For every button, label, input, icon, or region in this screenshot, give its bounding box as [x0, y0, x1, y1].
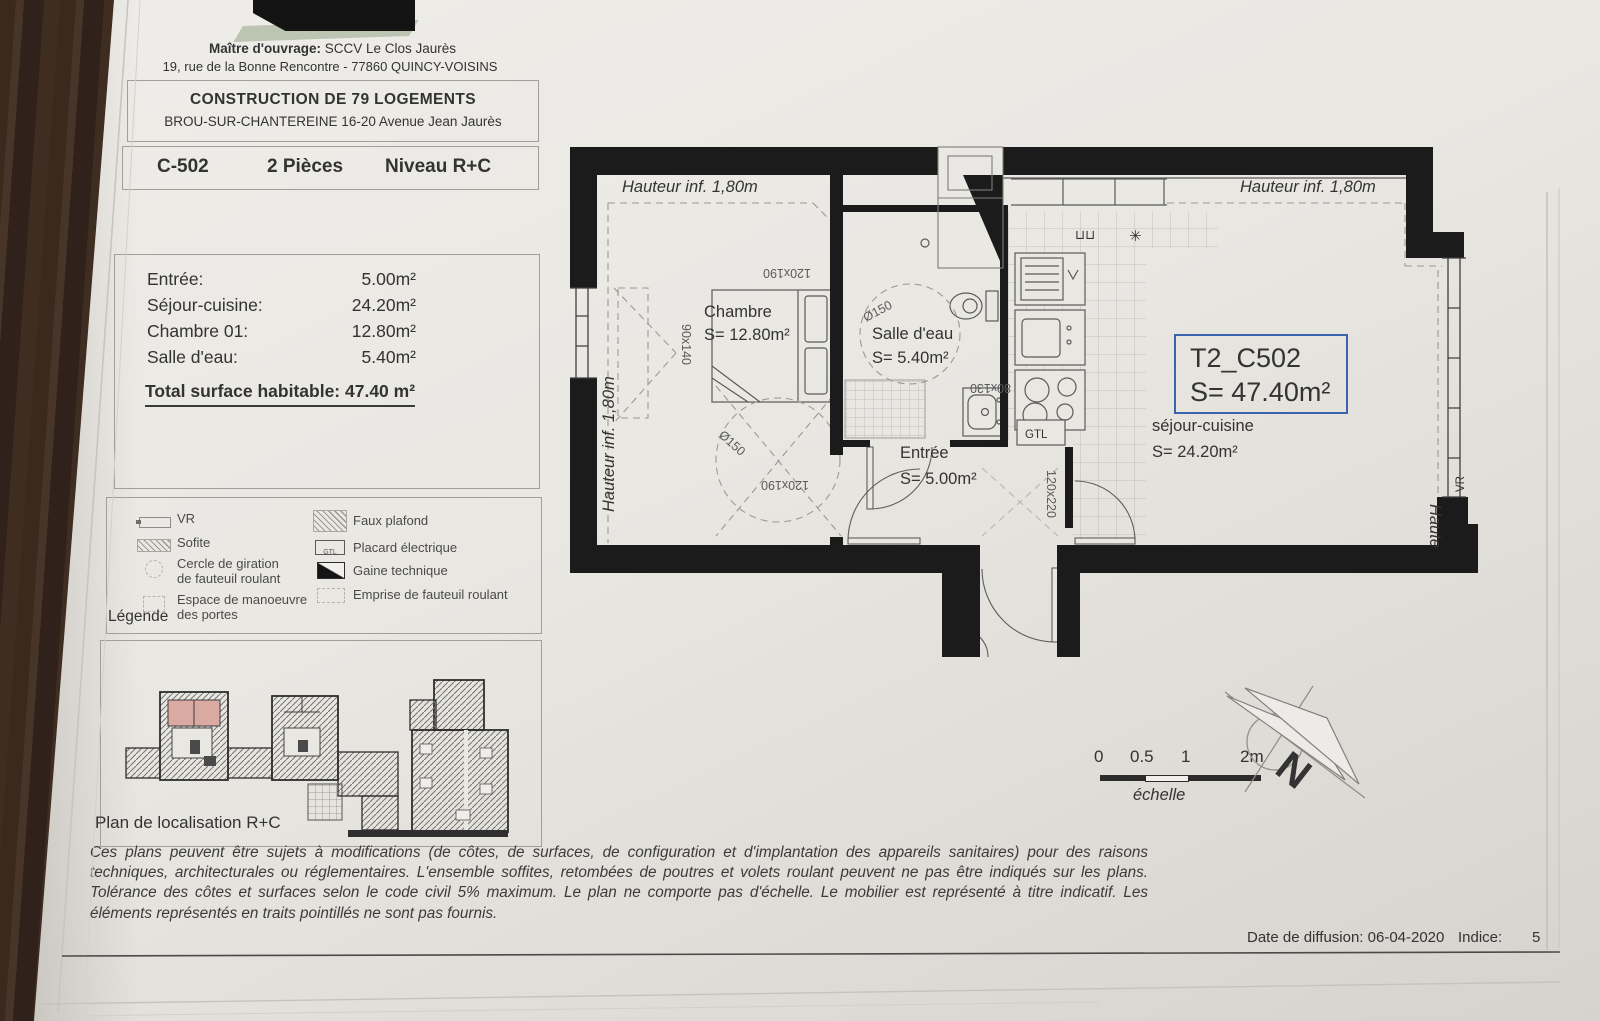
surface-value: 24.20m²	[352, 295, 416, 316]
scale-caption: échelle	[1133, 786, 1185, 805]
vr-label: VR	[1455, 476, 1467, 492]
indice-label: Indice:	[1458, 929, 1502, 946]
placard-electrique-icon: GTL	[315, 540, 345, 555]
unit-area: S= 47.40m²	[1190, 377, 1330, 407]
room-entree-name: Entrée	[900, 444, 949, 462]
legend-item-giration: Cercle de giration	[177, 556, 279, 571]
shower-tiles	[845, 380, 925, 438]
legend-item-manoeuvre-2: des portes	[177, 607, 238, 622]
room-salle-deau-name: Salle d'eau	[872, 325, 953, 343]
sofite-icon	[137, 539, 171, 552]
surface-label: Salle d'eau:	[147, 347, 238, 368]
gaine-technique-icon	[317, 562, 345, 579]
fridge	[1015, 253, 1085, 305]
cabinet-symbol: ⊔⊔	[1075, 227, 1095, 242]
height-note-top-right: Hauteur inf. 1,80m	[1240, 178, 1376, 196]
diffusion-date: Date de diffusion: 06-04-2020	[1247, 929, 1444, 946]
legend-item-manoeuvre: Espace de manoeuvre	[177, 592, 307, 607]
floor-plan: Hauteur inf. 1,80m Hauteur inf. 1,80m Ha…	[558, 138, 1478, 670]
room-sejour-area: S= 24.20m²	[1152, 443, 1238, 461]
gtl-label: GTL	[1025, 429, 1048, 441]
scale-tick-0: 0	[1094, 747, 1103, 767]
owner-label: Maître d'ouvrage:	[209, 41, 321, 56]
height-note-right-partial: Haute	[1426, 504, 1444, 548]
scale-segment-1	[1100, 775, 1145, 781]
legend-item-placard: Placard électrique	[353, 540, 457, 555]
dim-bed-top: 120x190	[763, 266, 811, 280]
project-title: CONSTRUCTION DE 79 LOGEMENTS	[128, 91, 538, 109]
project-title-box: CONSTRUCTION DE 79 LOGEMENTS BROU-SUR-CH…	[127, 80, 539, 142]
owner-address: 19, rue de la Bonne Rencontre - 77860 QU…	[120, 59, 540, 74]
room-chambre-area: S= 12.80m²	[704, 326, 790, 344]
surface-label: Séjour-cuisine:	[147, 295, 263, 316]
legend-item-sofite: Sofite	[177, 535, 210, 550]
legend-item-gaine: Gaine technique	[353, 563, 448, 578]
unit-box: C-502 2 Pièces Niveau R+C	[122, 146, 539, 190]
emprise-icon	[317, 588, 345, 603]
room-sejour-name: séjour-cuisine	[1152, 417, 1254, 435]
dim-entry-door: 120x220	[1044, 470, 1058, 518]
surface-total: Total surface habitable: 47.40 m²	[145, 381, 415, 407]
owner-line: Maître d'ouvrage: SCCV Le Clos Jaurès	[135, 41, 530, 56]
giration-circle-icon	[145, 560, 163, 578]
vent-symbol: ✳	[1129, 228, 1142, 245]
dim-chambre-window: 90x140	[679, 324, 693, 365]
surfaces-box: Entrée: 5.00m² Séjour-cuisine: 24.20m² C…	[114, 254, 540, 489]
ceiling-light	[921, 239, 929, 247]
chambre-window	[570, 288, 597, 378]
surface-value: 5.00m²	[362, 269, 416, 290]
surface-label: Chambre 01:	[147, 321, 248, 342]
dim-shower: 80x130	[970, 381, 1011, 395]
north-compass: N	[1215, 680, 1385, 810]
surface-label: Entrée:	[147, 269, 203, 290]
toilet	[950, 291, 998, 321]
scale-tick-1: 1	[1181, 747, 1190, 767]
faux-plafond-icon	[313, 510, 347, 532]
location-caption: Plan de localisation R+C	[95, 813, 281, 833]
dim-giration-salle-deau: Ø150	[861, 298, 895, 325]
legend-item-vr: VR	[177, 511, 195, 526]
unit-ref: C-502	[157, 156, 209, 178]
surface-value: 12.80m²	[352, 321, 416, 342]
indice-value: 5	[1532, 929, 1540, 946]
unit-code: T2_C502	[1190, 343, 1301, 373]
sejour-window	[1442, 258, 1466, 497]
legend-box: VR Sofite Cercle de giration de fauteuil…	[106, 497, 542, 634]
room-entree-area: S= 5.00m²	[900, 470, 977, 488]
placard-icon-label: GTL	[323, 549, 337, 556]
room-chambre-name: Chambre	[704, 303, 772, 321]
owner-name: SCCV Le Clos Jaurès	[321, 41, 456, 56]
height-note-top-left: Hauteur inf. 1,80m	[622, 178, 758, 196]
shaft-niche	[938, 147, 1003, 268]
scale-tick-05: 0.5	[1130, 747, 1154, 767]
location-plan-graphic	[112, 652, 527, 840]
plan-sheet: Maître d'ouvrage: SCCV Le Clos Jaurès 19…	[0, 0, 1600, 1021]
legend-title: Légende	[108, 608, 168, 626]
project-address: BROU-SUR-CHANTEREINE 16-20 Avenue Jean J…	[128, 114, 538, 129]
dim-giration-chambre: Ø150	[716, 428, 748, 459]
unit-rooms: 2 Pièces	[267, 156, 343, 178]
legend-item-emprise: Emprise de fauteuil roulant	[353, 587, 508, 602]
room-salle-deau-area: S= 5.40m²	[872, 349, 949, 367]
legend-item-giration-2: de fauteuil roulant	[177, 571, 280, 586]
dim-bed-bottom: 120x190	[761, 478, 809, 492]
height-note-left-vertical: Hauteur inf. 1,80m	[600, 376, 618, 512]
surface-value: 5.40m²	[362, 347, 416, 368]
legend-item-faux-plafond: Faux plafond	[353, 513, 428, 528]
unit-level: Niveau R+C	[385, 156, 491, 178]
vr-icon	[139, 517, 171, 528]
scale-segment-2	[1145, 775, 1189, 782]
disclaimer: Ces plans peuvent être sujets à modifica…	[90, 843, 1148, 924]
kitchen-sink	[1015, 310, 1085, 365]
builder-logo	[253, 0, 415, 31]
